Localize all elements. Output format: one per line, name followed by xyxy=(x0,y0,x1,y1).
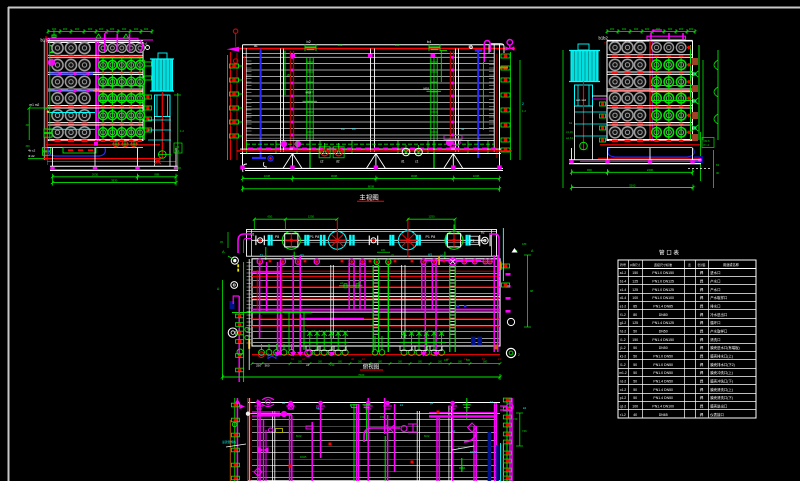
svg-text:b1b2: b1b2 xyxy=(41,38,51,43)
svg-text:产水取样口: 产水取样口 xyxy=(710,328,727,333)
svg-text:ss1 ss2: ss1 ss2 xyxy=(576,98,587,102)
svg-text:用途或名称: 用途或名称 xyxy=(723,262,740,267)
svg-text:g1: g1 xyxy=(430,401,434,405)
svg-text:焊: 焊 xyxy=(700,303,704,308)
svg-text:g1-2: g1-2 xyxy=(620,321,627,325)
svg-text:P2: P2 xyxy=(471,239,475,243)
svg-text:i1-2: i1-2 xyxy=(620,338,626,342)
svg-text:T: T xyxy=(604,42,606,46)
svg-text:150: 150 xyxy=(395,43,400,47)
svg-text:300: 300 xyxy=(483,360,488,363)
svg-text:300: 300 xyxy=(318,360,323,363)
svg-text:b1-4: b1-4 xyxy=(620,279,627,283)
svg-text:l1-2: l1-2 xyxy=(620,363,626,367)
svg-text:4l d2: 4l d2 xyxy=(28,154,35,158)
svg-text:300: 300 xyxy=(110,27,115,31)
svg-text:50: 50 xyxy=(633,396,637,400)
svg-text:300: 300 xyxy=(610,27,615,31)
svg-text:M18: M18 xyxy=(306,91,312,95)
svg-text:300: 300 xyxy=(438,360,443,363)
svg-text:100: 100 xyxy=(632,296,638,300)
svg-text:250: 250 xyxy=(256,363,261,367)
svg-text:2400: 2400 xyxy=(647,168,654,172)
svg-text:PN1.0 DN50: PN1.0 DN50 xyxy=(653,363,673,367)
svg-text:j1-2: j1-2 xyxy=(619,346,626,350)
svg-text:e1-2: e1-2 xyxy=(620,304,627,308)
svg-text:P8: P8 xyxy=(275,235,279,239)
svg-text:300: 300 xyxy=(298,360,303,363)
svg-text:100: 100 xyxy=(444,359,449,362)
svg-text:b1: b1 xyxy=(490,400,494,404)
svg-text:3008: 3008 xyxy=(331,174,338,178)
svg-text:Da: Da xyxy=(341,127,345,131)
svg-text:c2: c2 xyxy=(320,160,324,164)
svg-text:A: A xyxy=(222,249,225,254)
svg-text:746: 746 xyxy=(522,429,527,433)
svg-text:888: 888 xyxy=(154,173,159,177)
svg-text:仪表接口: 仪表接口 xyxy=(710,412,724,417)
svg-text:连接尺寸标准: 连接尺寸标准 xyxy=(654,262,672,267)
svg-text:DN.6: DN.6 xyxy=(704,139,710,143)
svg-text:M22: M22 xyxy=(296,434,302,438)
svg-text:125: 125 xyxy=(632,288,638,292)
svg-text:100: 100 xyxy=(381,249,386,252)
svg-text:300: 300 xyxy=(88,27,93,31)
svg-text:0.4: 0.4 xyxy=(176,149,180,153)
svg-text:产水口: 产水口 xyxy=(710,278,720,283)
svg-text:M18: M18 xyxy=(424,87,430,91)
svg-text:k2: k2 xyxy=(362,357,365,361)
svg-text:8008: 8008 xyxy=(368,185,375,189)
svg-text:n1-2: n1-2 xyxy=(620,379,627,383)
svg-text:1.2: 1.2 xyxy=(522,109,526,113)
svg-text:300: 300 xyxy=(63,27,68,31)
svg-text:焊: 焊 xyxy=(700,320,704,325)
svg-text:a2: a2 xyxy=(282,401,286,405)
svg-text:b2: b2 xyxy=(316,406,320,410)
svg-text:50: 50 xyxy=(633,371,637,375)
svg-text:PN1.0 DN100: PN1.0 DN100 xyxy=(652,296,674,300)
svg-text:P1 P8: P1 P8 xyxy=(310,235,320,239)
svg-text:o1-2: o1-2 xyxy=(620,388,627,392)
svg-text:膜壳冲洗口(上): 膜壳冲洗口(上) xyxy=(710,370,733,375)
svg-text:300: 300 xyxy=(418,360,423,363)
svg-text:800: 800 xyxy=(587,168,592,172)
svg-text:焊: 焊 xyxy=(700,387,704,392)
svg-text:DN65: DN65 xyxy=(659,413,668,417)
svg-text:k1-2: k1-2 xyxy=(620,354,626,358)
svg-text:c1 d1: c1 d1 xyxy=(566,130,573,134)
svg-text:40: 40 xyxy=(633,413,637,417)
svg-text:排水口: 排水口 xyxy=(710,303,720,308)
svg-text:300: 300 xyxy=(645,27,650,31)
svg-text:c2: c2 xyxy=(302,357,305,361)
svg-text:b1: b1 xyxy=(569,121,573,125)
svg-text:Db: Db xyxy=(352,127,356,131)
svg-text:PN1.0 DN150: PN1.0 DN150 xyxy=(652,271,674,275)
svg-text:0.6: 0.6 xyxy=(176,145,180,149)
svg-text:360: 360 xyxy=(265,363,270,367)
svg-text:P=.4: P=.4 xyxy=(704,143,710,147)
svg-text:进水口: 进水口 xyxy=(710,270,720,275)
svg-text:300: 300 xyxy=(679,27,684,31)
svg-text:150: 150 xyxy=(632,338,638,342)
svg-text:d1-4: d1-4 xyxy=(620,296,627,300)
svg-text:膜壳进水口(有端板): 膜壳进水口(有端板) xyxy=(710,345,739,350)
svg-text:PN1.4 DN150: PN1.4 DN150 xyxy=(652,338,674,342)
svg-text:PN1.0 DN125: PN1.0 DN125 xyxy=(652,288,674,292)
svg-text:焊: 焊 xyxy=(700,345,704,350)
svg-text:PN1.4 DN85: PN1.4 DN85 xyxy=(653,304,673,308)
svg-text:50: 50 xyxy=(633,346,637,350)
svg-text:150: 150 xyxy=(632,271,638,275)
svg-text:300: 300 xyxy=(75,27,80,31)
svg-text:DN50: DN50 xyxy=(659,329,668,333)
svg-text:产水口: 产水口 xyxy=(710,287,720,292)
svg-text:b2: b2 xyxy=(307,40,311,44)
svg-text:125: 125 xyxy=(632,279,638,283)
svg-text:50: 50 xyxy=(633,329,637,333)
svg-text:300: 300 xyxy=(622,27,627,31)
svg-text:x2: x2 xyxy=(306,363,310,367)
svg-text:清洗口: 清洗口 xyxy=(710,337,720,342)
svg-text:主视图: 主视图 xyxy=(359,193,379,202)
svg-text:f1-2: f1-2 xyxy=(620,313,626,317)
svg-text:PN1.0 DN125: PN1.0 DN125 xyxy=(652,279,674,283)
svg-text:焊: 焊 xyxy=(700,378,704,383)
svg-text:3200: 3200 xyxy=(629,183,636,187)
svg-text:150: 150 xyxy=(338,43,343,47)
svg-text:溢流管规格: 溢流管规格 xyxy=(222,440,236,444)
svg-text:b4: b4 xyxy=(427,40,431,44)
svg-text:m1 m2: m1 m2 xyxy=(30,103,40,107)
svg-text:300: 300 xyxy=(26,124,31,127)
svg-text:焊: 焊 xyxy=(700,395,704,400)
svg-text:冷水进出口: 冷水进出口 xyxy=(710,312,727,317)
svg-text:300: 300 xyxy=(398,360,403,363)
svg-text:膜壳进出口: 膜壳进出口 xyxy=(710,403,727,408)
svg-text:b2: b2 xyxy=(291,357,295,361)
svg-text:DN80: DN80 xyxy=(659,313,668,317)
svg-text:k1: k1 xyxy=(498,357,501,361)
svg-text:r1-2: r1-2 xyxy=(620,413,626,417)
svg-text:100: 100 xyxy=(632,404,638,408)
svg-text:俯视图: 俯视图 xyxy=(363,362,380,370)
svg-text:650: 650 xyxy=(267,215,272,219)
svg-text:PN1.0 DN50: PN1.0 DN50 xyxy=(653,354,673,358)
svg-text:180: 180 xyxy=(522,242,527,246)
svg-text:PN1.4 DN50: PN1.4 DN50 xyxy=(653,379,673,383)
svg-text:d1: d1 xyxy=(401,160,405,164)
svg-text:300: 300 xyxy=(144,27,149,31)
svg-text:300: 300 xyxy=(134,27,139,31)
svg-text:PN1.0 DN50: PN1.0 DN50 xyxy=(653,371,673,375)
svg-text:80: 80 xyxy=(633,313,637,317)
svg-text:300: 300 xyxy=(466,359,471,362)
svg-text:150: 150 xyxy=(287,74,292,77)
svg-text:3930: 3930 xyxy=(111,178,118,182)
svg-text:30: 30 xyxy=(716,171,720,175)
svg-text:1250: 1250 xyxy=(308,215,315,219)
svg-text:焊: 焊 xyxy=(700,337,704,342)
svg-text:d2: d2 xyxy=(351,357,355,361)
svg-text:300: 300 xyxy=(358,360,363,363)
svg-text:焊: 焊 xyxy=(700,278,704,283)
svg-text:e2: e2 xyxy=(358,280,362,284)
svg-text:V1: V1 xyxy=(441,254,445,258)
svg-text:P1 P8: P1 P8 xyxy=(426,235,436,239)
svg-text:b2: b2 xyxy=(481,231,485,235)
svg-text:b1: b1 xyxy=(482,357,486,361)
svg-text:7000: 7000 xyxy=(358,373,365,377)
svg-text:300: 300 xyxy=(122,27,127,31)
svg-text:a1 b1: a1 b1 xyxy=(566,136,573,140)
svg-text:焊: 焊 xyxy=(700,270,704,275)
svg-text:d2: d2 xyxy=(336,160,340,164)
svg-text:1.2: 1.2 xyxy=(180,129,184,133)
svg-text:50: 50 xyxy=(633,363,637,367)
svg-text:焊: 焊 xyxy=(700,295,704,300)
svg-text:300: 300 xyxy=(668,27,673,31)
svg-text:m1-2: m1-2 xyxy=(619,371,626,375)
svg-text:k1: k1 xyxy=(400,403,404,407)
svg-text:c1: c1 xyxy=(415,160,419,164)
svg-text:焊: 焊 xyxy=(700,412,704,417)
svg-text:产水取样口: 产水取样口 xyxy=(710,295,727,300)
svg-text:150: 150 xyxy=(513,417,518,421)
svg-text:150: 150 xyxy=(380,415,385,419)
svg-text:焊: 焊 xyxy=(700,403,704,408)
svg-text:a1: a1 xyxy=(254,44,258,48)
svg-text:230: 230 xyxy=(330,363,335,367)
svg-text:膜壳清洗口(下): 膜壳清洗口(下) xyxy=(710,395,733,400)
svg-text:符号: 符号 xyxy=(620,262,626,267)
svg-text:焊: 焊 xyxy=(700,353,704,358)
svg-text:300: 300 xyxy=(458,360,463,363)
svg-text:c1-4: c1-4 xyxy=(620,288,626,292)
svg-text:焊: 焊 xyxy=(700,362,704,367)
svg-text:W3: W3 xyxy=(428,253,432,257)
svg-text:50: 50 xyxy=(633,379,637,383)
svg-text:300: 300 xyxy=(689,27,694,31)
svg-text:M22: M22 xyxy=(424,434,430,438)
svg-text:y1: y1 xyxy=(145,42,149,46)
svg-text:密封面: 密封面 xyxy=(698,263,706,267)
svg-text:管 口 表: 管 口 表 xyxy=(659,249,679,257)
svg-text:焊: 焊 xyxy=(700,312,704,317)
svg-text:焊: 焊 xyxy=(700,287,704,292)
svg-text:a1-2: a1-2 xyxy=(620,271,627,275)
svg-text:2030: 2030 xyxy=(92,173,99,177)
svg-text:300: 300 xyxy=(99,27,104,31)
svg-text:b1b2: b1b2 xyxy=(599,36,609,41)
svg-text:e2: e2 xyxy=(340,281,344,285)
svg-text:p1-2: p1-2 xyxy=(620,396,627,400)
svg-text:4b c2: 4b c2 xyxy=(28,149,36,153)
svg-text:膜壳排水口(下2): 膜壳排水口(下2) xyxy=(710,362,735,367)
svg-text:1038: 1038 xyxy=(264,174,271,178)
svg-text:300: 300 xyxy=(634,27,639,31)
svg-text:q1-2: q1-2 xyxy=(620,404,627,408)
svg-text:PN1.4 DN100: PN1.4 DN100 xyxy=(652,404,674,408)
svg-text:300: 300 xyxy=(338,360,343,363)
svg-text:300: 300 xyxy=(26,145,31,148)
svg-text:2: 2 xyxy=(522,102,524,106)
svg-text:85: 85 xyxy=(633,304,637,308)
svg-text:DN50: DN50 xyxy=(470,450,478,454)
svg-text:50: 50 xyxy=(633,388,637,392)
svg-text:300: 300 xyxy=(378,360,383,363)
svg-text:1250: 1250 xyxy=(428,215,435,219)
svg-text:4a: 4a xyxy=(461,127,465,131)
svg-text:1008: 1008 xyxy=(473,174,480,178)
svg-text:焊: 焊 xyxy=(700,370,704,375)
svg-text:x2: x2 xyxy=(452,429,456,433)
svg-text:50: 50 xyxy=(633,354,637,358)
svg-text:公称尺寸: 公称尺寸 xyxy=(630,263,641,267)
svg-text:125: 125 xyxy=(632,321,638,325)
svg-text:3008: 3008 xyxy=(411,174,418,178)
svg-text:98: 98 xyxy=(530,289,534,293)
svg-text:膜壳排水口(上): 膜壳排水口(上) xyxy=(710,353,733,358)
svg-text:膜壳冲洗口(下): 膜壳冲洗口(下) xyxy=(710,378,733,383)
svg-text:DN25: DN25 xyxy=(300,456,307,459)
svg-text:DN50: DN50 xyxy=(659,346,668,350)
svg-text:PN1.4 DN125: PN1.4 DN125 xyxy=(652,321,674,325)
svg-text:膜壳清洗口(上): 膜壳清洗口(上) xyxy=(710,387,733,392)
svg-text:k2: k2 xyxy=(523,406,527,410)
svg-text:h1-2: h1-2 xyxy=(620,329,627,333)
svg-text:PN1.4 DN50: PN1.4 DN50 xyxy=(653,388,673,392)
svg-text:焊: 焊 xyxy=(700,328,704,333)
svg-text:循环口: 循环口 xyxy=(710,320,720,325)
svg-text:N: N xyxy=(350,404,352,408)
svg-text:2: 2 xyxy=(518,353,520,357)
svg-text:PN1.4 DN50: PN1.4 DN50 xyxy=(653,396,673,400)
svg-text:63: 63 xyxy=(716,163,720,167)
svg-text:连: 连 xyxy=(688,263,691,267)
